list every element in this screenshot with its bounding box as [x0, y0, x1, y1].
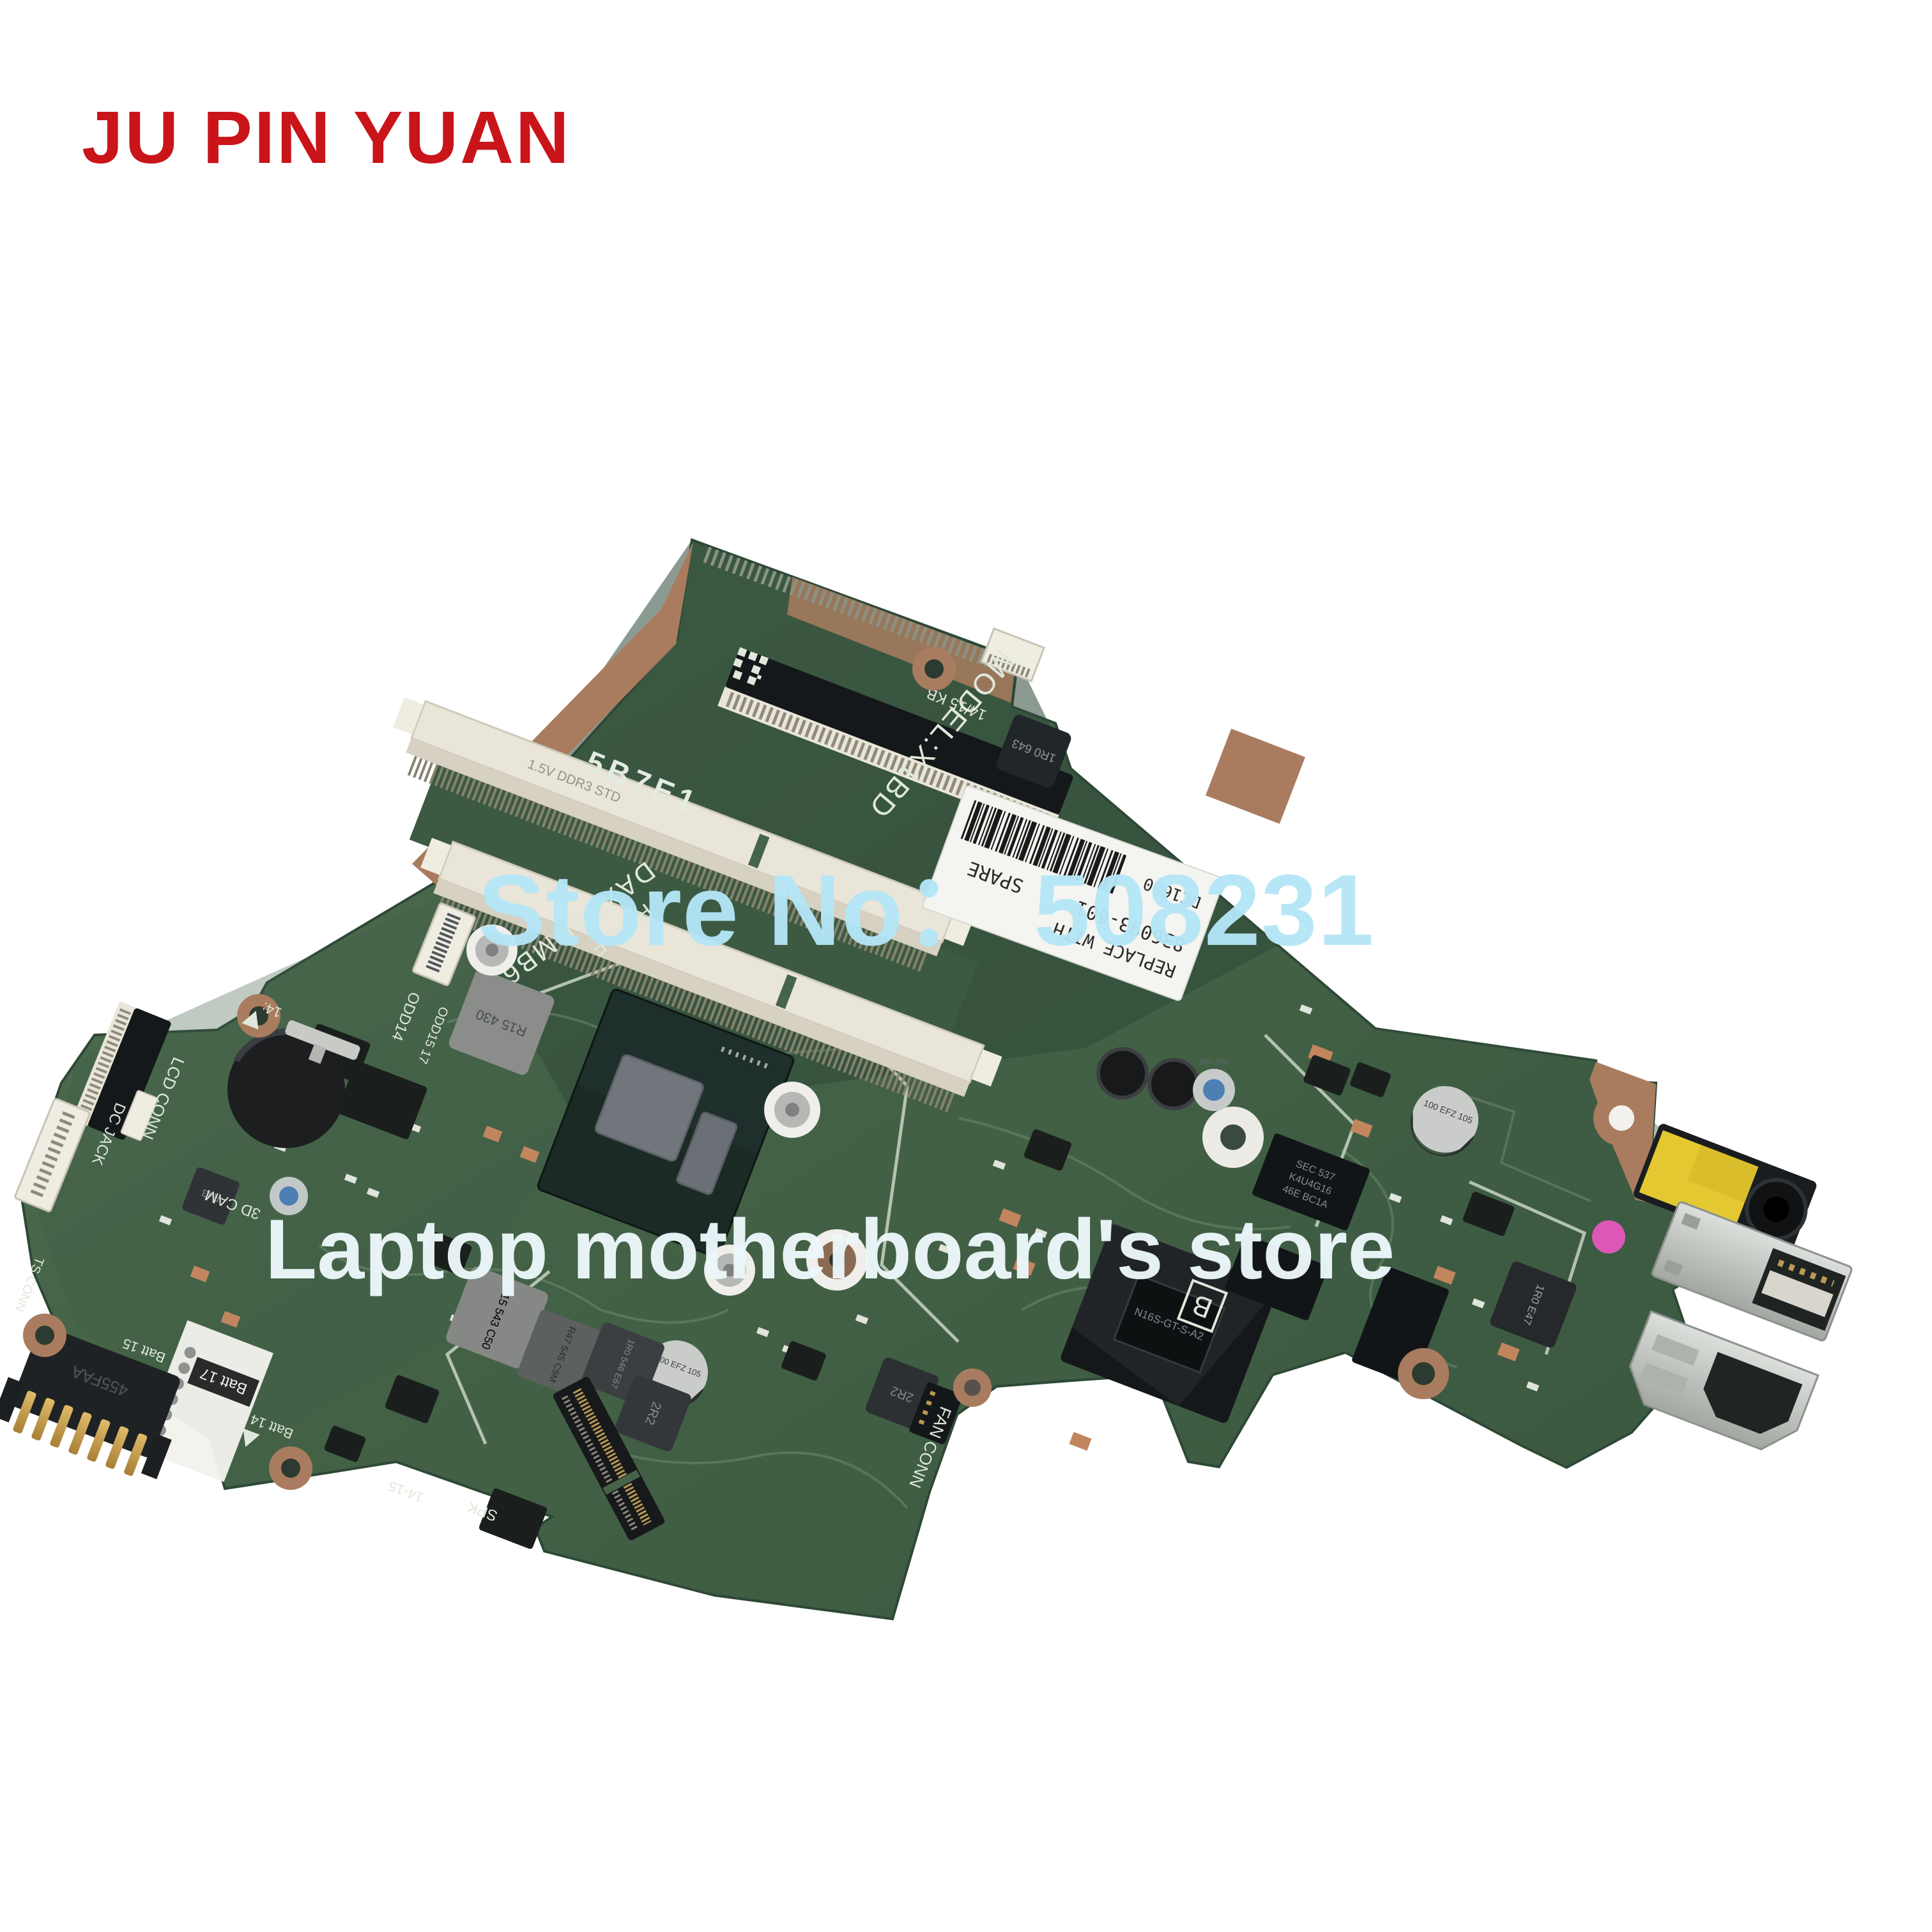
store-number-watermark: Store No： 508231: [478, 828, 1375, 974]
product-photo: 1.5V DDR3 STD 5B7E1 1R0 643 L 14/15 KB M…: [0, 0, 1932, 1932]
cap-390-label: 390 25V: [1200, 1057, 1229, 1066]
pink-sticker: [1592, 1220, 1625, 1253]
hdmi-port: [1619, 1311, 1818, 1459]
silk-14-15: 14-15: [387, 1478, 426, 1506]
standoff-ring: [1202, 1107, 1264, 1168]
corner-screw-hole: [1609, 1105, 1634, 1131]
seller-brand: JU PIN YUAN: [82, 95, 571, 180]
store-name-watermark: Laptop motherboard's store: [265, 1201, 1395, 1298]
